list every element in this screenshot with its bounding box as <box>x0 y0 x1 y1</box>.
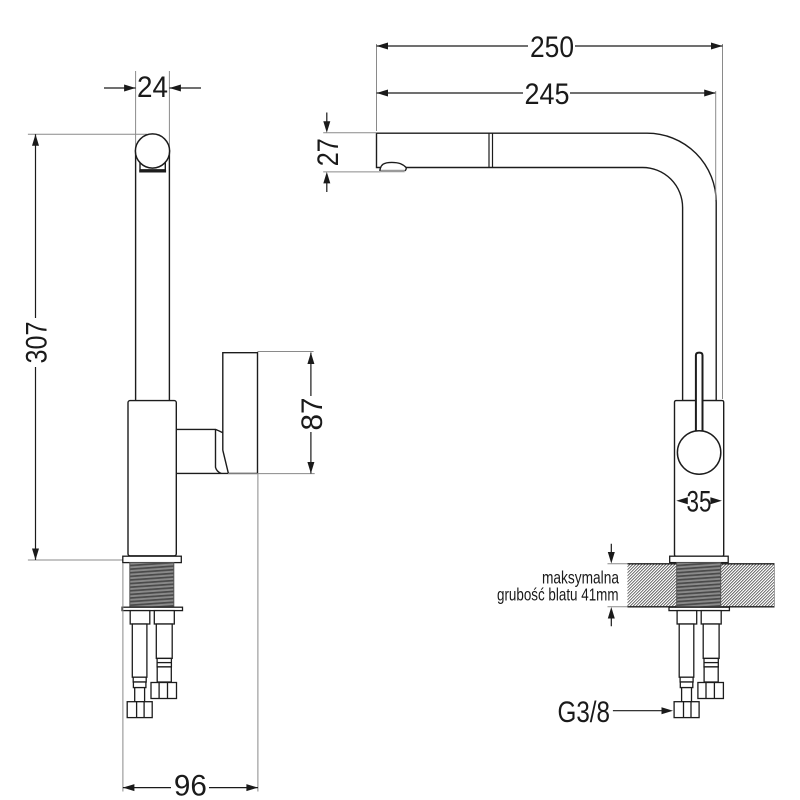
svg-text:27: 27 <box>312 138 345 166</box>
svg-text:250: 250 <box>530 31 574 64</box>
svg-text:96: 96 <box>174 770 207 800</box>
svg-text:245: 245 <box>525 78 570 111</box>
svg-text:G3/8: G3/8 <box>558 696 611 729</box>
svg-text:24: 24 <box>137 71 168 104</box>
svg-text:87: 87 <box>296 398 329 431</box>
svg-text:grubość blatu 41mm: grubość blatu 41mm <box>497 584 619 604</box>
svg-text:35: 35 <box>687 486 712 519</box>
svg-text:307: 307 <box>21 322 54 364</box>
